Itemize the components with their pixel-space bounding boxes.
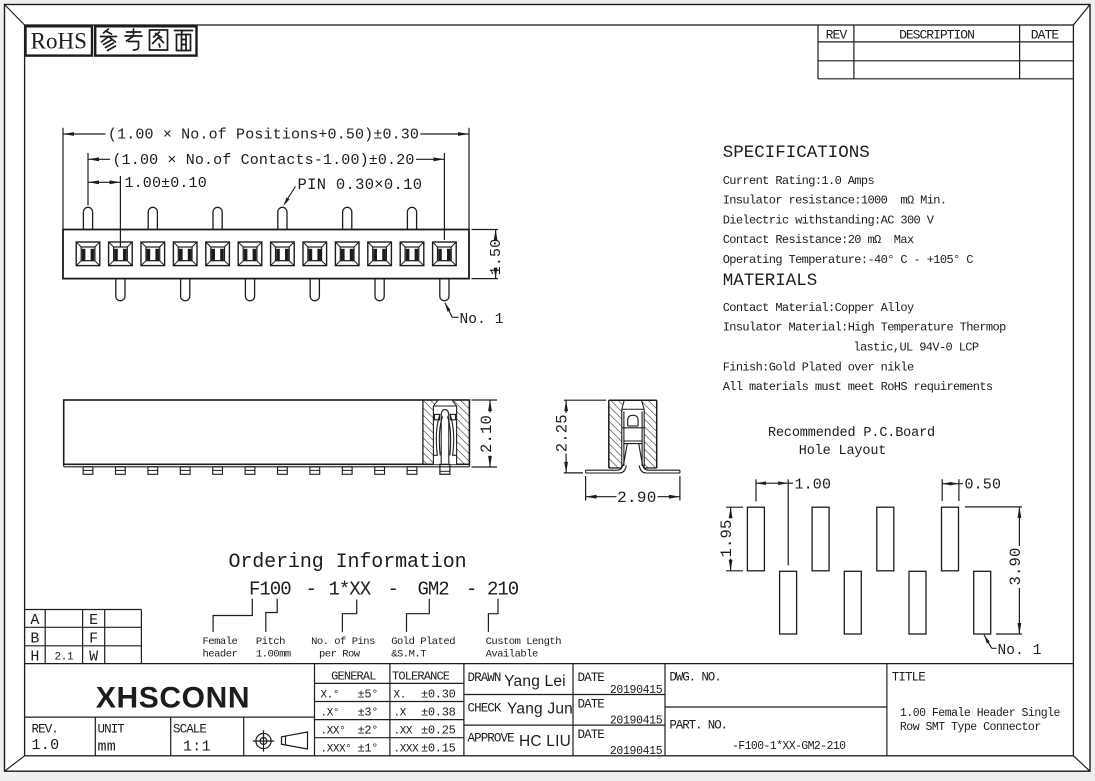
svg-text:Finish:Gold Plated over nikle: Finish:Gold Plated over nikle [723, 360, 914, 374]
svg-text:Custom Length: Custom Length [486, 636, 562, 648]
svg-text:±2°: ±2° [358, 724, 379, 738]
svg-text:Contact Resistance:20 mΩ Max: Contact Resistance:20 mΩ Max [723, 233, 914, 247]
svg-text:.XXX: .XXX [394, 744, 420, 756]
svg-text:1.00 Female Header Single: 1.00 Female Header Single [900, 707, 1061, 720]
svg-text:-: - [388, 578, 399, 600]
svg-text:.X°: .X° [321, 707, 340, 719]
svg-text:RoHS: RoHS [31, 29, 87, 54]
svg-text:1.00mm: 1.00mm [256, 649, 291, 661]
svg-text:Yang Jun: Yang Jun [507, 701, 573, 718]
svg-text:SPECIFICATIONS: SPECIFICATIONS [723, 143, 870, 163]
svg-text:GENERAL: GENERAL [331, 669, 376, 683]
svg-text:.XXX°: .XXX° [321, 744, 352, 756]
svg-text:1.95: 1.95 [718, 519, 736, 557]
svg-text:(1.00 × No.of Positions+0.50)±: (1.00 × No.of Positions+0.50)±0.30 [108, 127, 419, 144]
svg-text:per Row: per Row [319, 649, 361, 661]
svg-text:HC LIU: HC LIU [519, 733, 571, 750]
svg-text:Insulator Material:High Temper: Insulator Material:High Temperature Ther… [723, 321, 1006, 335]
svg-text:DRAWN: DRAWN [468, 671, 501, 685]
svg-text:-: - [466, 578, 477, 600]
svg-text:W: W [89, 648, 98, 665]
svg-text:SCALE: SCALE [173, 722, 206, 736]
svg-text:A: A [30, 612, 39, 629]
svg-text:-: - [306, 578, 317, 600]
svg-text:±0.25: ±0.25 [421, 724, 456, 738]
svg-text:Gold Plated: Gold Plated [391, 636, 455, 648]
svg-text:REV.: REV. [32, 722, 58, 736]
svg-text:PIN 0.30×0.10: PIN 0.30×0.10 [298, 176, 423, 194]
svg-text:Yang Lei: Yang Lei [504, 673, 566, 690]
svg-text:F100: F100 [249, 578, 291, 600]
svg-text:1.00±0.10: 1.00±0.10 [125, 175, 207, 192]
svg-text:±0.30: ±0.30 [421, 687, 456, 701]
svg-text:REV: REV [826, 28, 848, 43]
svg-text:All materials must meet RoHS r: All materials must meet RoHS requirement… [723, 380, 993, 394]
svg-text:No. 1: No. 1 [998, 643, 1042, 659]
svg-text:Ordering Information: Ordering Information [228, 551, 466, 574]
svg-text:.X: .X [394, 707, 407, 719]
svg-text:Dielectric withstanding:AC 300: Dielectric withstanding:AC 300 V [723, 213, 935, 227]
svg-text:Pitch: Pitch [256, 636, 285, 648]
svg-text:TOLERANCE: TOLERANCE [392, 669, 450, 683]
svg-text:No. 1: No. 1 [460, 312, 504, 328]
svg-text:2.1: 2.1 [54, 651, 74, 663]
svg-text:DATE: DATE [578, 671, 605, 685]
svg-text:E: E [89, 612, 98, 629]
svg-text:mm: mm [98, 738, 117, 755]
svg-text:3.90: 3.90 [1007, 547, 1025, 585]
svg-text:2.25: 2.25 [554, 414, 572, 452]
svg-text:UNIT: UNIT [98, 722, 126, 736]
svg-text:±0.38: ±0.38 [421, 705, 456, 719]
svg-text:210: 210 [487, 578, 519, 600]
svg-text:H: H [30, 648, 39, 665]
svg-text:Current Rating:1.0 Amps: Current Rating:1.0 Amps [723, 174, 875, 188]
svg-text:lastic,UL 94V-0 LCP: lastic,UL 94V-0 LCP [853, 341, 978, 355]
svg-text:±3°: ±3° [358, 705, 379, 719]
svg-text:Row SMT Type Connector: Row SMT Type Connector [900, 721, 1041, 734]
svg-text:TITLE: TITLE [892, 670, 925, 684]
svg-text:DATE: DATE [1031, 28, 1060, 43]
svg-text:Operating Temperature:-40° C -: Operating Temperature:-40° C - +105° C [723, 253, 974, 267]
svg-text:±1°: ±1° [358, 742, 379, 756]
svg-text:PART. NO.: PART. NO. [669, 719, 727, 733]
svg-text:.XX: .XX [394, 726, 413, 738]
svg-text:(1.00 × No.of Contacts-1.00)±0: (1.00 × No.of Contacts-1.00)±0.20 [113, 152, 415, 169]
svg-text:1*XX: 1*XX [329, 578, 372, 600]
svg-text:2.10: 2.10 [478, 415, 496, 453]
svg-text:XHSCONN: XHSCONN [96, 682, 250, 715]
svg-text:DWG. NO.: DWG. NO. [669, 670, 720, 684]
svg-text:Recommended P.C.Board: Recommended P.C.Board [768, 426, 935, 441]
svg-text:Female: Female [203, 636, 238, 648]
svg-text:GM2: GM2 [418, 578, 450, 600]
svg-text:X.: X. [394, 689, 406, 701]
svg-text:B: B [30, 630, 39, 647]
svg-text:Hole Layout: Hole Layout [799, 444, 886, 459]
svg-text:MATERIALS: MATERIALS [723, 271, 818, 291]
svg-text:APPROVE: APPROVE [468, 732, 515, 746]
svg-text:1.50: 1.50 [488, 239, 505, 276]
svg-text:CHECK: CHECK [468, 701, 502, 715]
svg-text:header: header [203, 649, 238, 661]
svg-text:Contact Material:Copper Alloy: Contact Material:Copper Alloy [723, 301, 914, 315]
svg-text:1.0: 1.0 [32, 737, 60, 754]
svg-text:No. of Pins: No. of Pins [311, 636, 375, 648]
svg-text:&S.M.T: &S.M.T [391, 649, 426, 661]
svg-text:20190415: 20190415 [610, 684, 663, 697]
svg-text:20190415: 20190415 [610, 714, 663, 727]
svg-text:.XX°: .XX° [321, 726, 346, 738]
svg-text:1.00: 1.00 [795, 476, 832, 493]
svg-text:20190415: 20190415 [610, 745, 663, 758]
svg-text:DATE: DATE [578, 728, 605, 742]
svg-text:X.°: X.° [321, 689, 340, 701]
svg-text:-F100-1*XX-GM2-210: -F100-1*XX-GM2-210 [732, 740, 846, 753]
svg-text:2.90: 2.90 [617, 489, 657, 507]
svg-text:Available: Available [486, 649, 538, 661]
svg-text:±0.15: ±0.15 [421, 742, 456, 756]
svg-text:0.50: 0.50 [965, 477, 1002, 494]
svg-text:Insulator resistance:1000 mΩ: Insulator resistance:1000 mΩ Min. [723, 194, 947, 208]
svg-text:DATE: DATE [578, 698, 605, 712]
svg-text:DESCRIPTION: DESCRIPTION [899, 28, 974, 43]
svg-text:1:1: 1:1 [183, 738, 211, 755]
svg-text:F: F [89, 630, 98, 647]
svg-text:±5°: ±5° [358, 687, 379, 701]
